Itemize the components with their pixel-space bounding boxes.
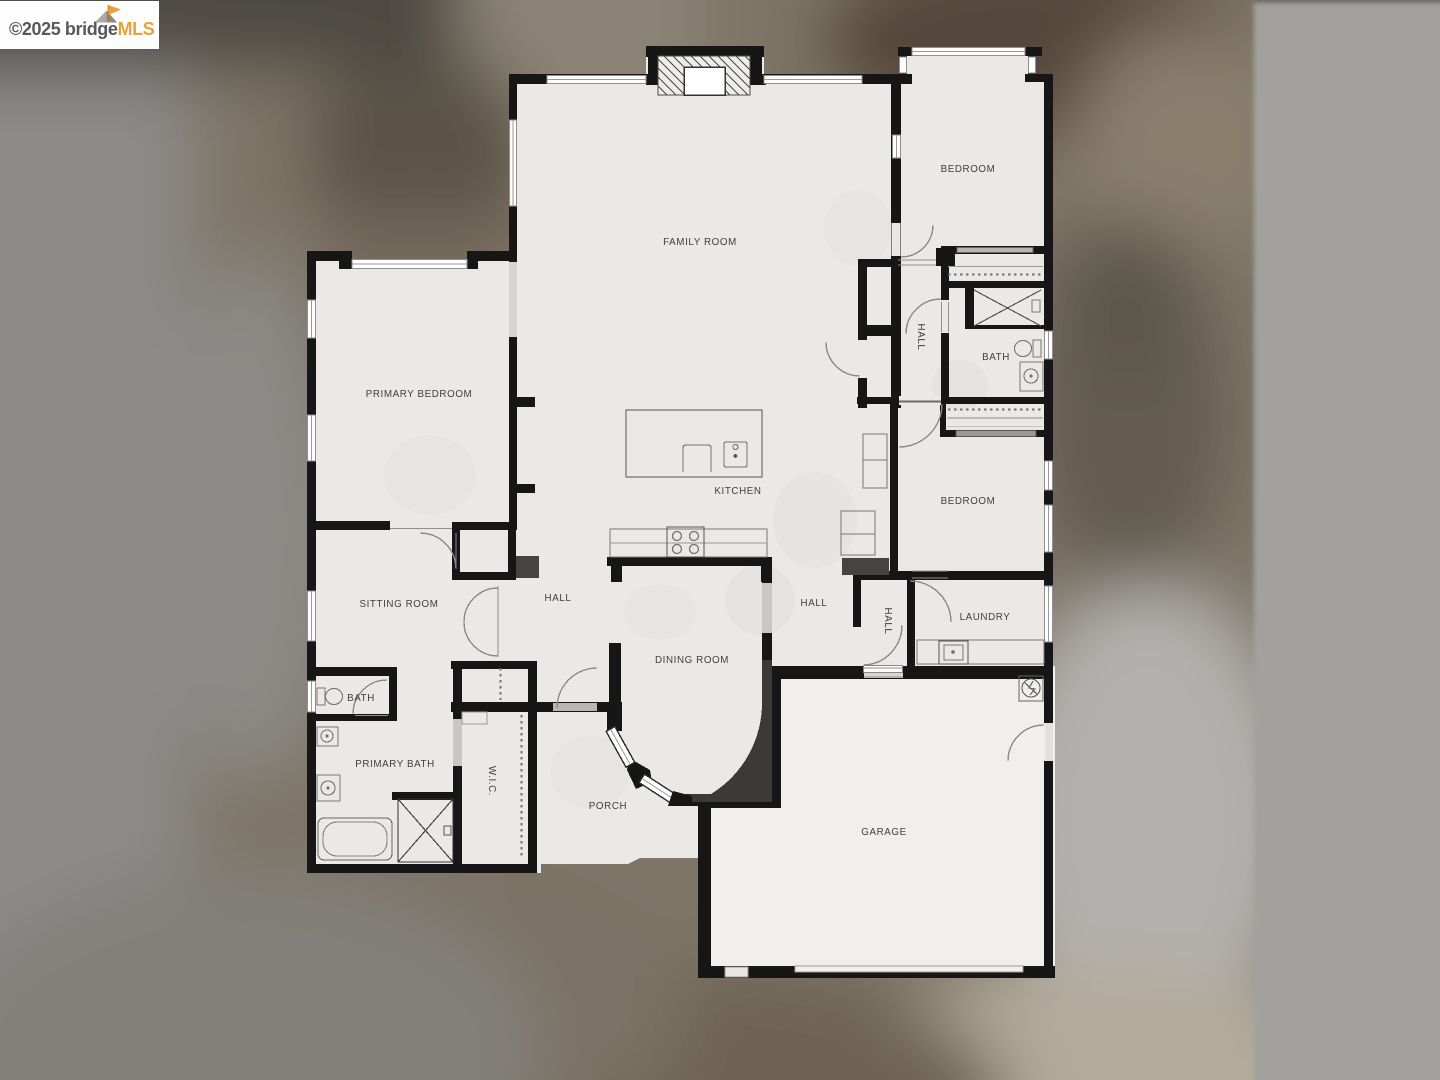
svg-text:BATH: BATH	[982, 352, 1010, 363]
svg-text:GARAGE: GARAGE	[861, 827, 907, 838]
svg-text:PRIMARY BEDROOM: PRIMARY BEDROOM	[366, 389, 473, 400]
svg-text:BEDROOM: BEDROOM	[941, 496, 996, 507]
svg-text:LAUNDRY: LAUNDRY	[960, 612, 1011, 623]
svg-text:FAMILY ROOM: FAMILY ROOM	[663, 237, 737, 248]
svg-text:HALL: HALL	[801, 598, 828, 609]
svg-text:HALL: HALL	[882, 608, 893, 635]
svg-text:KITCHEN: KITCHEN	[714, 486, 761, 497]
svg-text:PRIMARY BATH: PRIMARY BATH	[355, 759, 435, 770]
svg-text:HALL: HALL	[545, 593, 572, 604]
svg-text:HALL: HALL	[915, 324, 926, 351]
svg-text:BATH: BATH	[347, 693, 375, 704]
svg-text:PORCH: PORCH	[589, 801, 627, 812]
svg-text:W.I.C.: W.I.C.	[486, 766, 497, 796]
svg-text:SITTING ROOM: SITTING ROOM	[359, 599, 438, 610]
svg-text:DINING ROOM: DINING ROOM	[655, 655, 729, 666]
svg-text:BEDROOM: BEDROOM	[941, 164, 996, 175]
